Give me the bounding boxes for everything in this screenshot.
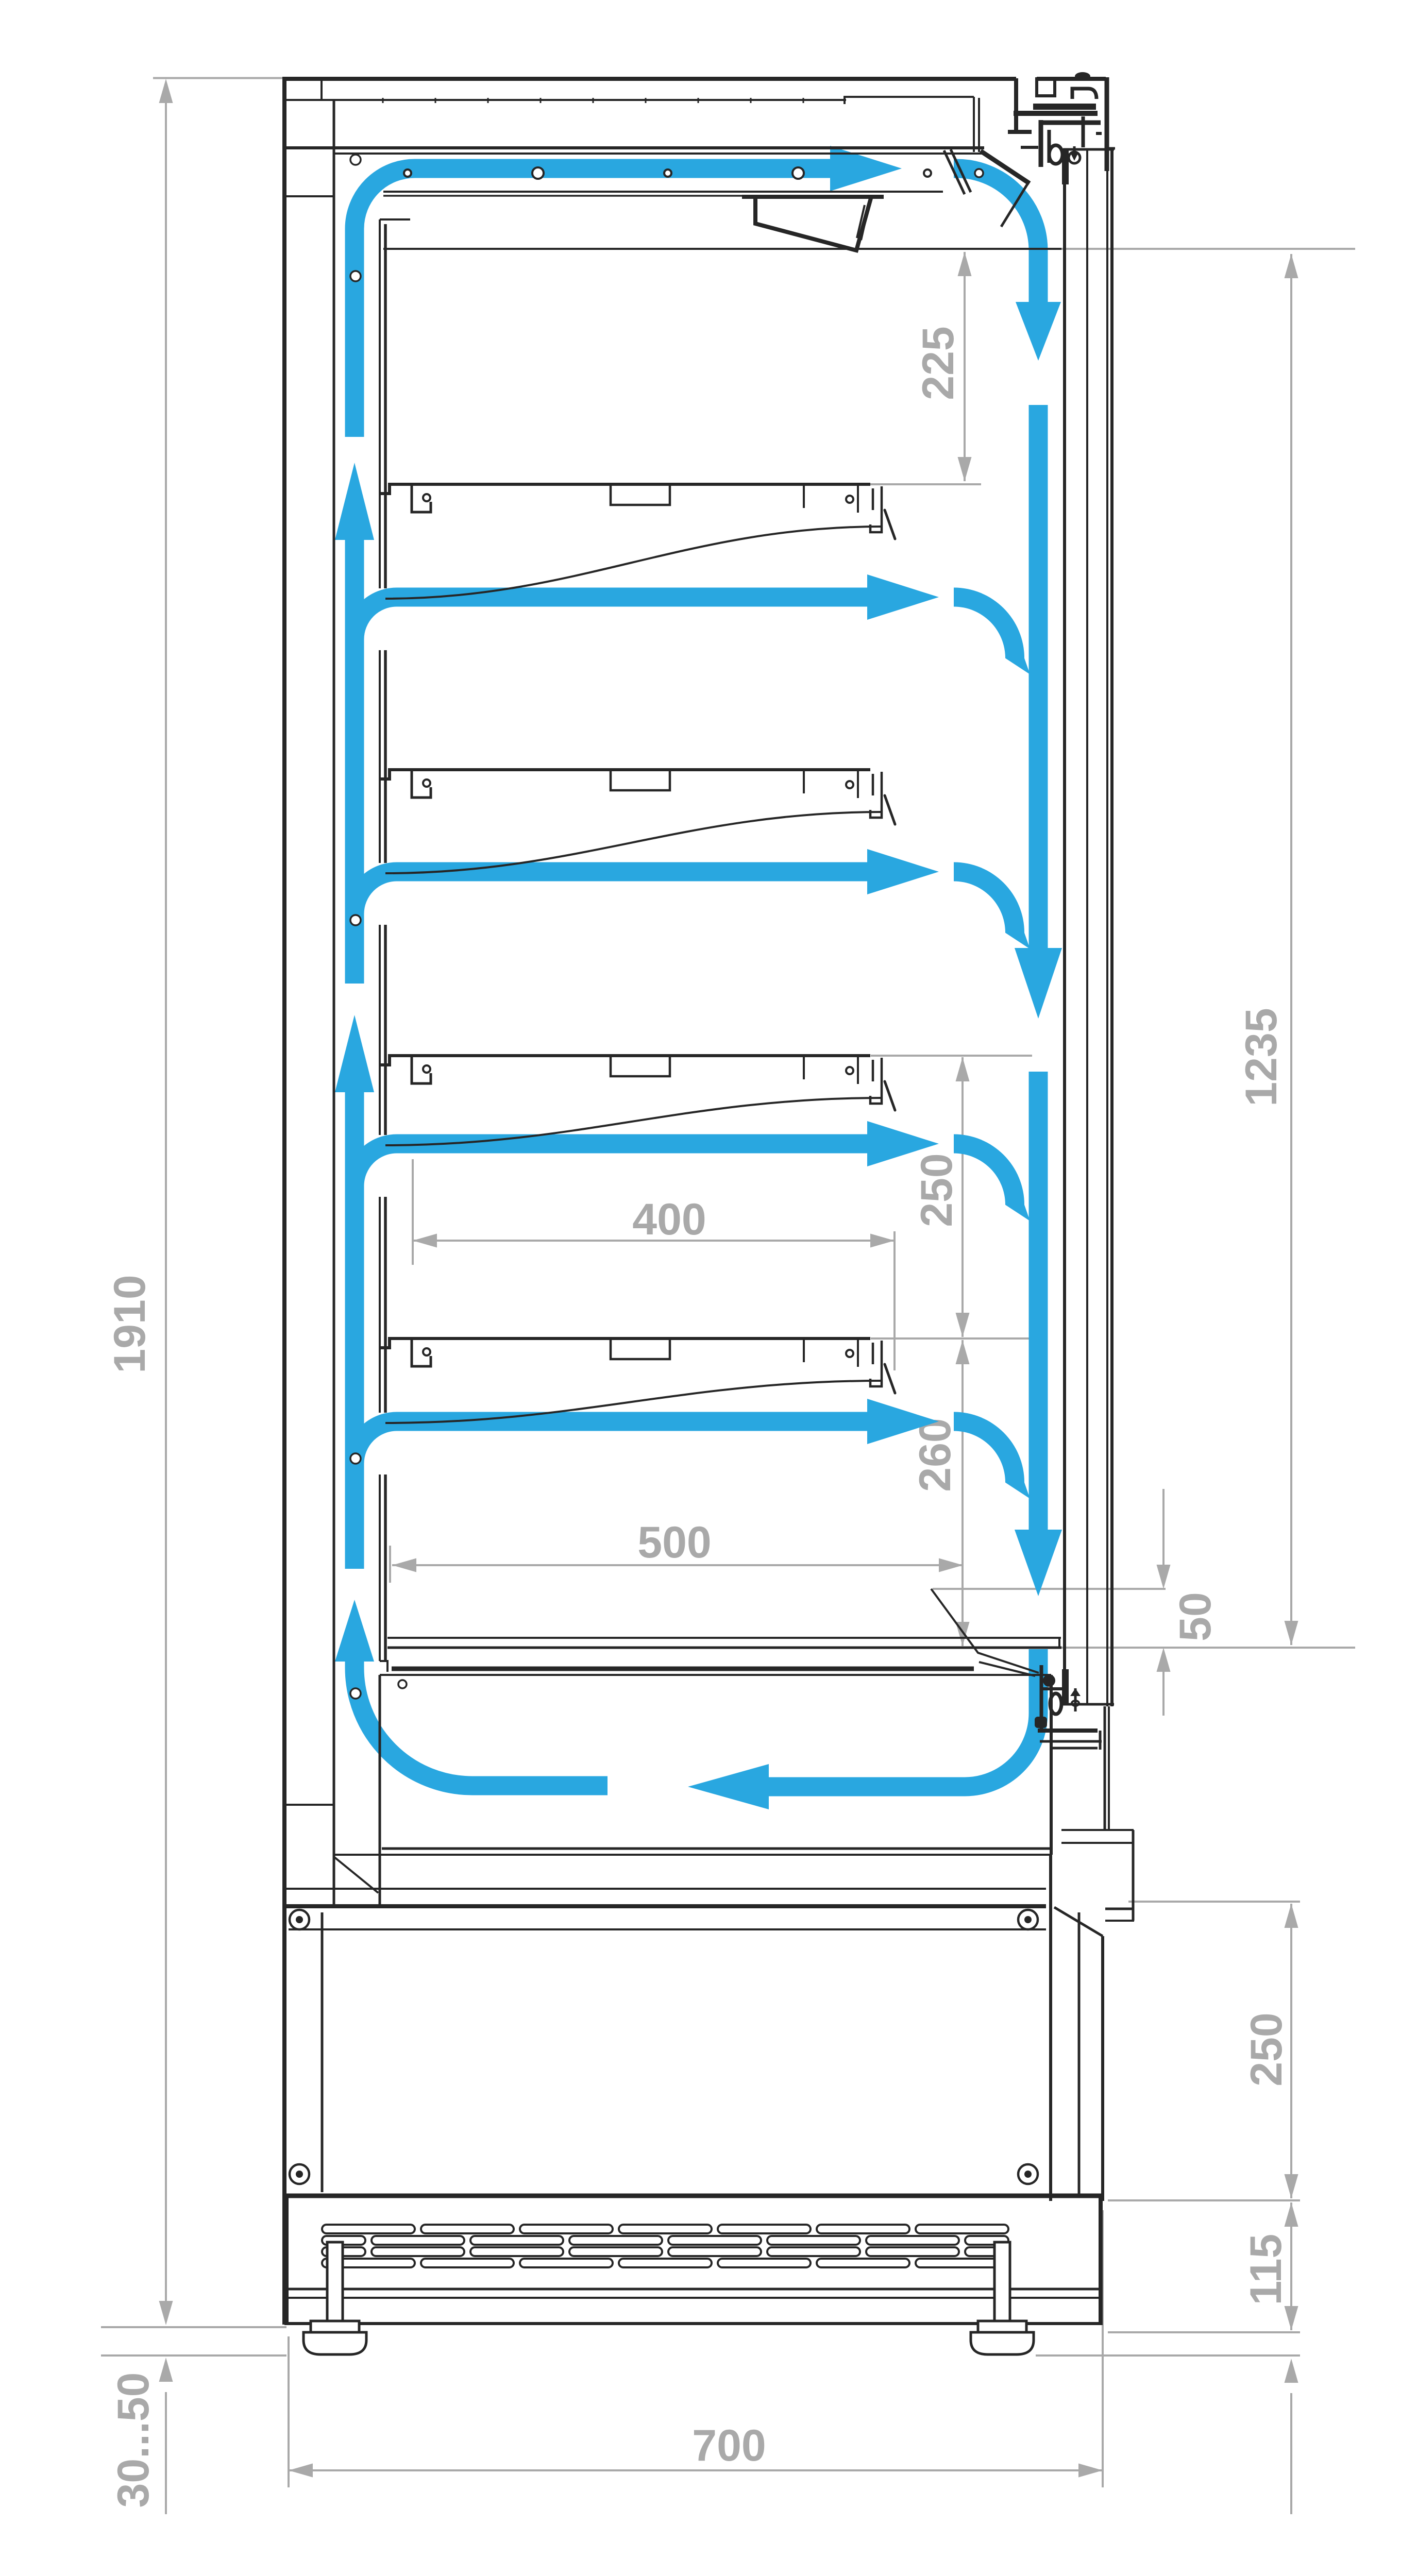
svg-text:225: 225 (914, 326, 963, 400)
svg-text:115: 115 (1241, 2234, 1291, 2306)
svg-text:250: 250 (1242, 2012, 1291, 2087)
svg-text:1910: 1910 (105, 1275, 155, 1373)
svg-text:400: 400 (632, 1195, 706, 1244)
svg-text:30...50: 30...50 (109, 2372, 158, 2508)
svg-text:50: 50 (1171, 1592, 1220, 1641)
svg-text:1235: 1235 (1237, 1008, 1286, 1106)
svg-text:260: 260 (910, 1418, 960, 1492)
svg-text:250: 250 (912, 1153, 961, 1227)
svg-text:700: 700 (692, 2421, 766, 2470)
svg-text:500: 500 (637, 1518, 712, 1567)
